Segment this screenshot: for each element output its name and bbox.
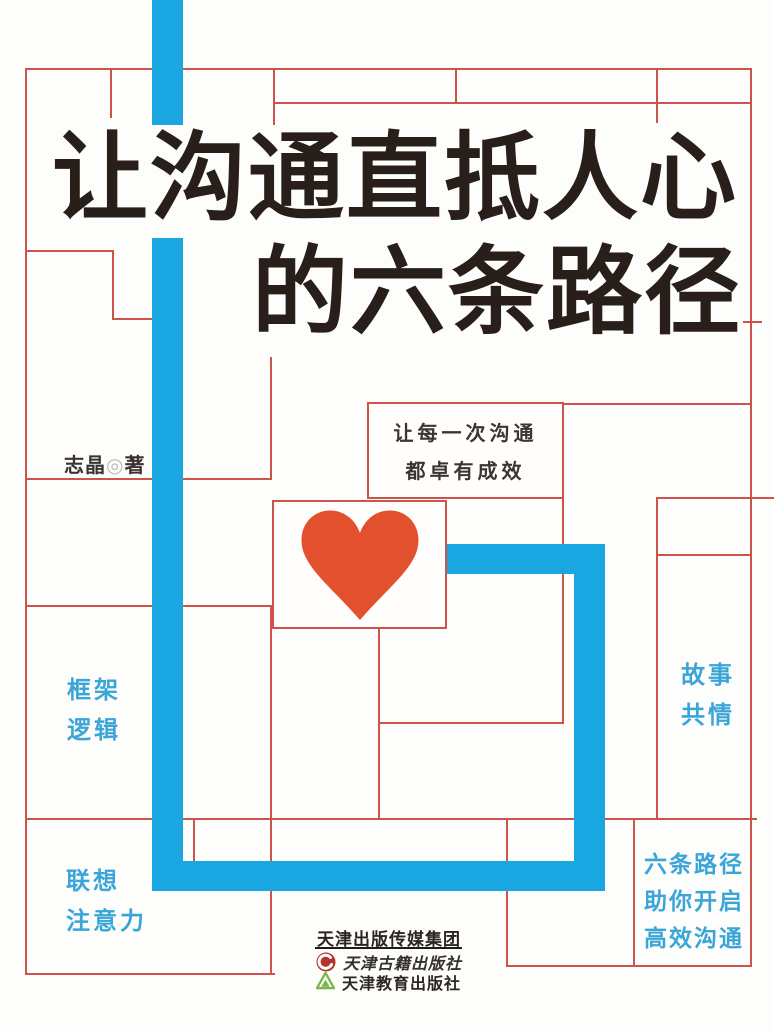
grid-line-horizontal bbox=[656, 497, 774, 499]
grid-line-vertical bbox=[193, 818, 195, 864]
keyword-frame-logic: 框架 逻辑 bbox=[67, 670, 121, 750]
heart-icon bbox=[296, 508, 424, 620]
tagline-line2: 都卓有成效 bbox=[406, 455, 526, 484]
author-mark: ◎ bbox=[106, 453, 124, 477]
keyword-empathy: 共情 bbox=[681, 695, 735, 735]
keyword-logic: 逻辑 bbox=[67, 710, 121, 750]
grid-line-vertical bbox=[270, 605, 272, 975]
green-triangle-logo-icon bbox=[316, 972, 335, 991]
blue-path-heart-connector bbox=[447, 544, 605, 574]
grid-line-horizontal bbox=[743, 321, 762, 323]
grid-line-vertical bbox=[750, 68, 752, 967]
keyword-attention: 注意力 bbox=[66, 901, 147, 941]
grid-line-horizontal bbox=[25, 478, 272, 480]
grid-line-horizontal bbox=[378, 722, 564, 724]
keyword-association: 联想 bbox=[66, 861, 147, 901]
title-line2: 的六条路径 bbox=[0, 244, 742, 340]
grid-line-vertical bbox=[506, 818, 508, 967]
promo-line1: 六条路径 bbox=[635, 847, 753, 884]
grid-line-horizontal bbox=[25, 68, 752, 70]
grid-line-vertical bbox=[273, 68, 275, 125]
grid-line-vertical bbox=[25, 68, 27, 975]
grid-line-vertical bbox=[110, 68, 112, 118]
grid-line-horizontal bbox=[25, 973, 275, 975]
author-name: 志晶 bbox=[64, 453, 106, 477]
promo-block: 六条路径 助你开启 高效沟通 bbox=[635, 847, 753, 958]
promo-line3: 高效沟通 bbox=[635, 921, 753, 958]
grid-line-vertical bbox=[656, 68, 658, 123]
grid-line-vertical bbox=[455, 68, 457, 104]
grid-line-horizontal bbox=[656, 554, 752, 556]
promo-line2: 助你开启 bbox=[635, 884, 753, 921]
title-line1: 让沟通直抵人心 bbox=[52, 130, 738, 226]
author-role: 著 bbox=[124, 453, 145, 477]
publisher-imprint-education: 天津教育出版社 bbox=[342, 970, 461, 994]
book-cover: 让每一次沟通 都卓有成效 让沟通直抵人心 的六条路径 志晶◎著 框架 逻辑 故事… bbox=[0, 0, 774, 1032]
blue-path-bottom-bar bbox=[152, 861, 605, 891]
grid-line-vertical bbox=[656, 497, 658, 820]
keyword-story: 故事 bbox=[681, 655, 735, 695]
blue-path-right-bar bbox=[574, 544, 605, 891]
grid-line-vertical bbox=[378, 627, 380, 820]
author-credit: 志晶◎著 bbox=[64, 449, 145, 478]
grid-line-horizontal bbox=[25, 818, 757, 820]
tagline-box: 让每一次沟通 都卓有成效 bbox=[367, 402, 564, 499]
grid-line-horizontal bbox=[273, 102, 752, 104]
keyword-story-empathy: 故事 共情 bbox=[681, 655, 735, 735]
grid-line-horizontal bbox=[25, 605, 272, 607]
publisher-imprint-education-row: 天津教育出版社 bbox=[316, 971, 461, 992]
grid-line-horizontal bbox=[507, 965, 752, 967]
blue-path-top-segment bbox=[152, 0, 183, 125]
keyword-association-attention: 联想 注意力 bbox=[66, 861, 147, 941]
keyword-frame: 框架 bbox=[67, 670, 121, 710]
red-swirl-logo-icon bbox=[316, 952, 336, 972]
tagline-line1: 让每一次沟通 bbox=[394, 417, 538, 446]
grid-line-vertical bbox=[270, 357, 272, 480]
